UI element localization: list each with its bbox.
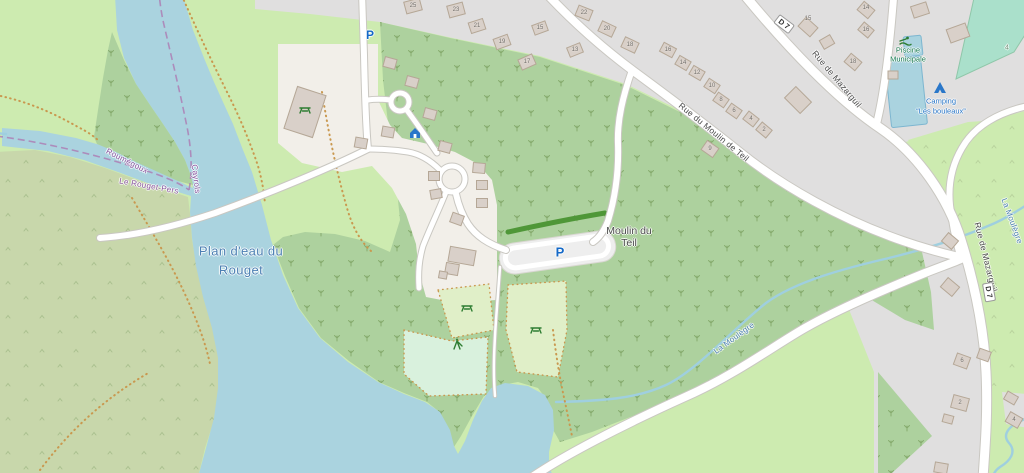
map-canvas[interactable]: Plan d'eau du Rouget Moulin du Teil Rue … xyxy=(0,0,1024,473)
building xyxy=(429,172,440,181)
building xyxy=(934,462,949,473)
building xyxy=(473,162,486,173)
building xyxy=(888,71,898,79)
building xyxy=(430,189,442,200)
building xyxy=(438,271,447,279)
building xyxy=(477,199,488,208)
map-render-layer xyxy=(0,0,1024,473)
building xyxy=(381,126,395,138)
building xyxy=(477,181,488,190)
building xyxy=(354,137,368,149)
